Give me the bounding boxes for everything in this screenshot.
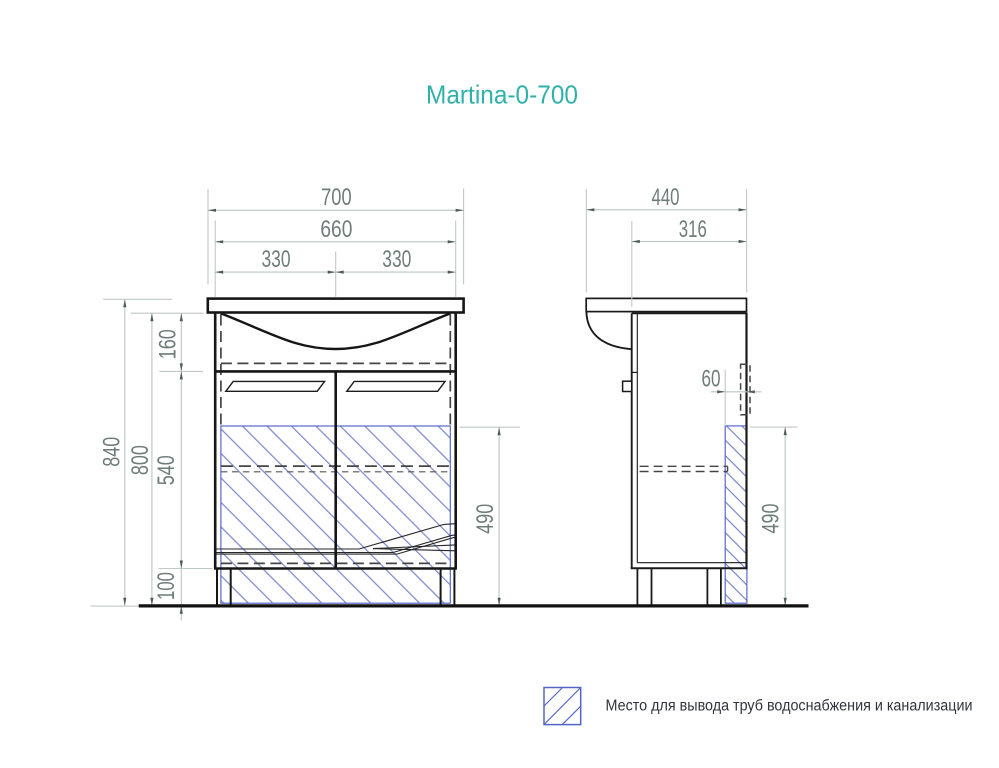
svg-text:330: 330 bbox=[382, 246, 411, 273]
svg-text:60: 60 bbox=[702, 366, 721, 393]
svg-text:100: 100 bbox=[153, 572, 180, 600]
svg-text:660: 660 bbox=[320, 216, 352, 243]
svg-text:700: 700 bbox=[321, 184, 352, 211]
svg-text:Martina-0-700: Martina-0-700 bbox=[426, 80, 578, 110]
svg-text:160: 160 bbox=[154, 329, 181, 359]
svg-text:800: 800 bbox=[127, 445, 154, 475]
svg-text:330: 330 bbox=[262, 246, 291, 273]
svg-text:440: 440 bbox=[652, 184, 680, 211]
svg-text:840: 840 bbox=[99, 437, 126, 467]
svg-text:490: 490 bbox=[472, 504, 499, 534]
svg-text:316: 316 bbox=[679, 216, 707, 243]
svg-text:540: 540 bbox=[153, 455, 180, 485]
svg-text:490: 490 bbox=[757, 504, 784, 534]
svg-text:Место для вывода труб водоснаб: Место для вывода труб водоснабжения и ка… bbox=[606, 698, 973, 715]
